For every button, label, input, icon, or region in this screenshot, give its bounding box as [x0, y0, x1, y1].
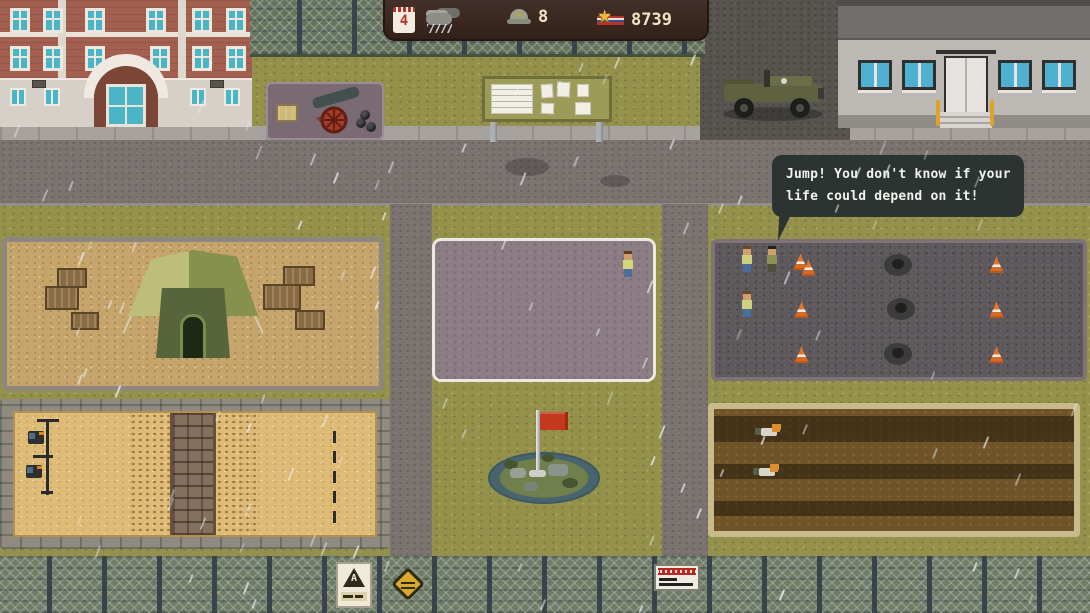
- sign-text-bar: [341, 592, 367, 601]
- sign-header-band: [658, 568, 696, 575]
- drill-sergeant[interactable]: [766, 246, 778, 273]
- handrail: [990, 100, 994, 126]
- door-header: [936, 50, 996, 54]
- window: [858, 60, 892, 90]
- supply-crate: [71, 312, 99, 330]
- tire-obstacle: [887, 298, 915, 320]
- rain-cloud-icon: [422, 7, 456, 33]
- pilaster: [178, 0, 186, 78]
- lane-marker: [46, 421, 49, 495]
- window: [10, 46, 30, 71]
- bush: [562, 478, 578, 488]
- notice-paper: [541, 84, 554, 99]
- sign-line: [659, 583, 693, 586]
- entrance[interactable]: [84, 54, 168, 127]
- roof-band: [838, 0, 1090, 40]
- supply-crate: [283, 266, 315, 286]
- hud-bar: 4 8 ★ 8739: [383, 0, 709, 41]
- supply-crate: [45, 286, 79, 310]
- speech-line-1: Jump! You don't know if your: [786, 164, 1012, 186]
- notice-board[interactable]: [478, 72, 618, 144]
- red-flag: [540, 412, 568, 430]
- cannon-icon: [296, 84, 370, 138]
- warning-letter: A: [343, 574, 365, 584]
- notice-paper: [575, 102, 591, 115]
- stars-group: ★ 8739: [597, 7, 672, 32]
- machine-gun[interactable]: [26, 465, 42, 478]
- supply-crate: [57, 268, 87, 288]
- sand-debris: [130, 413, 170, 535]
- road-sign[interactable]: [390, 566, 426, 602]
- handrail: [936, 100, 940, 126]
- warning-sign[interactable]: A: [336, 562, 372, 608]
- notice-paper: [577, 84, 589, 97]
- window: [44, 88, 60, 106]
- sand-surface: [13, 411, 377, 537]
- crawling-recruit[interactable]: [755, 424, 785, 438]
- rock: [548, 464, 568, 476]
- rock: [510, 468, 526, 478]
- window: [192, 8, 212, 33]
- army-tent[interactable]: [128, 250, 258, 360]
- crawling-recruit[interactable]: [753, 464, 783, 478]
- window: [10, 88, 26, 106]
- soldiers-group: 8: [507, 7, 548, 27]
- window: [998, 60, 1032, 90]
- vent: [32, 80, 46, 88]
- window: [902, 60, 936, 90]
- date-weather-group: 4: [393, 7, 456, 33]
- sand-training-pit[interactable]: [0, 399, 390, 549]
- window: [192, 46, 212, 71]
- trim-band: [0, 32, 252, 37]
- road-stain: [600, 175, 630, 187]
- tire-obstacle: [884, 254, 912, 276]
- barracks-door[interactable]: [106, 84, 146, 127]
- supply-crate: [295, 310, 325, 330]
- stars-count: 8739: [631, 10, 672, 30]
- flagpole-base: [529, 470, 546, 477]
- supply-crate: [263, 284, 301, 310]
- day-number: 4: [393, 13, 415, 29]
- lane-marker: [41, 491, 53, 494]
- bush: [542, 454, 554, 462]
- vertical-road-right: [662, 204, 708, 562]
- speech-bubble-tail: [778, 207, 806, 241]
- notice-paper: [557, 82, 571, 98]
- perimeter-fence: [0, 556, 1090, 613]
- recruit[interactable]: [741, 291, 753, 318]
- speech-line-2: life could depend on it!: [786, 186, 1012, 208]
- window: [85, 8, 105, 33]
- notice-paper: [541, 103, 554, 114]
- recruit[interactable]: [741, 246, 753, 273]
- recruit[interactable]: [622, 251, 634, 278]
- window: [43, 46, 63, 71]
- calendar-icon: 4: [393, 7, 415, 33]
- window: [224, 88, 240, 106]
- flag-monument[interactable]: [484, 408, 614, 508]
- cannonball: [366, 122, 376, 132]
- tent-door[interactable]: [180, 314, 206, 358]
- speech-bubble: Jump! You don't know if your life could …: [772, 155, 1024, 217]
- sign-lines: [401, 580, 415, 589]
- cannon-display[interactable]: [266, 82, 384, 140]
- window: [43, 8, 63, 33]
- sign-line: [659, 578, 677, 581]
- cannonball: [360, 110, 370, 120]
- board-face: [482, 76, 612, 122]
- vent: [210, 80, 224, 88]
- notice-paper: [491, 84, 533, 114]
- training-camp-map: A 4 8 ★ 8739 Jump! You don't know if: [0, 0, 1090, 613]
- window: [226, 46, 246, 71]
- window: [1042, 60, 1076, 90]
- vertical-road-left: [390, 204, 432, 562]
- machine-gun[interactable]: [28, 431, 44, 444]
- window: [190, 88, 206, 106]
- star-medal-icon: ★: [597, 7, 624, 32]
- lane-marker: [33, 455, 53, 458]
- ammo-crate: [276, 104, 298, 122]
- helmet-icon: [507, 9, 531, 25]
- entrance-steps: [940, 112, 992, 128]
- soldiers-count: 8: [538, 7, 548, 27]
- road-stain: [505, 158, 549, 176]
- hq-door[interactable]: [944, 56, 988, 114]
- sand-debris: [216, 413, 260, 535]
- hq-building[interactable]: [838, 0, 1090, 128]
- window: [226, 8, 246, 33]
- barracks-building[interactable]: [0, 0, 252, 127]
- military-jeep[interactable]: [714, 58, 832, 124]
- lane-marker: [333, 423, 336, 523]
- rock: [524, 482, 538, 491]
- tent-grounds[interactable]: [2, 237, 384, 391]
- info-sign[interactable]: [654, 564, 700, 591]
- window: [10, 8, 30, 33]
- window: [146, 8, 166, 33]
- brick-path: [170, 413, 216, 535]
- tire-obstacle: [884, 343, 912, 365]
